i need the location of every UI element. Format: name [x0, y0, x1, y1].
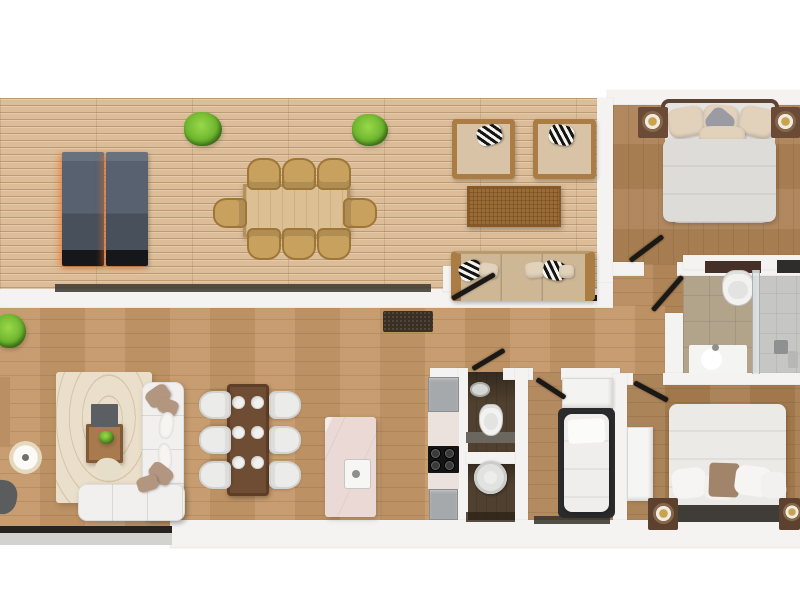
bed2-pillow-1: [671, 466, 708, 499]
bed1-duvet: [663, 139, 776, 222]
window-sill-left: [0, 533, 172, 545]
terrace-chair-2: [282, 158, 316, 190]
vanity-sink: [701, 349, 722, 370]
burner-4: [445, 461, 454, 470]
terrace-chair-3: [317, 158, 351, 190]
lamp-2: [775, 111, 796, 132]
shower-faucet: [788, 351, 798, 368]
wall-junction: [597, 283, 613, 308]
bedroom1-bottom-wall-a: [613, 262, 644, 276]
plate-5: [232, 456, 245, 469]
terrace-chair-1: [247, 158, 281, 190]
bed2-pillow-4: [760, 471, 787, 499]
single-bedroom2-wall: [613, 374, 627, 526]
bathroom-bottom-wall-b: [663, 373, 800, 385]
shower-control: [774, 340, 788, 354]
side-table-handle: [22, 454, 29, 461]
terrace-chair-8: [343, 198, 377, 228]
kitchen-counter-a: [428, 412, 459, 446]
terrace-plant-2: [352, 114, 388, 146]
kitchen-back-wall: [458, 368, 468, 526]
kitchen-cabinet: [429, 489, 458, 520]
dining-chair-2: [199, 426, 231, 454]
sofa-base: [78, 484, 185, 521]
fridge: [428, 377, 459, 412]
plate-4: [251, 426, 264, 439]
floor-plan-3d-top-view: [0, 0, 800, 600]
wardrobe: [562, 378, 613, 408]
dining-chair-1: [199, 391, 231, 419]
plate-1: [232, 396, 245, 409]
desk-dresser: [627, 427, 653, 501]
terrace-chair-7: [213, 198, 247, 228]
plate-3: [232, 426, 245, 439]
dining-chair-3: [199, 461, 231, 489]
burner-1: [431, 449, 440, 458]
terrace-chair-5: [282, 228, 316, 260]
sun-lounger-1: [62, 152, 104, 266]
coffee-table-plant: [99, 431, 114, 444]
lamp-1: [642, 111, 663, 132]
wc-toilet: [479, 404, 503, 436]
dining-chair-6: [269, 461, 301, 489]
bottom-wall: [170, 520, 800, 548]
terrace-glass-wall: [55, 284, 431, 292]
kitchen-counter-b: [428, 473, 459, 489]
terrace-plant-1: [184, 112, 222, 146]
shower-glass: [752, 270, 760, 374]
bedroom1-left-wall: [597, 98, 613, 290]
burner-2: [445, 449, 454, 458]
wc-right-wall: [515, 368, 528, 526]
terrace-coffee-table: [467, 186, 561, 227]
doormat: [383, 311, 433, 332]
burner-3: [431, 461, 440, 470]
lamp-3: [653, 503, 674, 524]
wc-sink: [470, 382, 490, 397]
toilet-main-bath: [722, 270, 754, 306]
washing-machine: [474, 461, 507, 494]
sun-lounger-2: [106, 152, 148, 266]
coffee-table-tray: [91, 404, 118, 427]
bathroom-hall-wall: [665, 313, 683, 374]
sofa-pillow-cream-3: [559, 265, 574, 278]
single-bed-pillow: [567, 418, 605, 444]
small-rooms-shadow: [466, 512, 515, 522]
terrace-chair-6: [317, 228, 351, 260]
terrace-chair-4: [247, 228, 281, 260]
island-faucet: [352, 470, 360, 478]
bed2-footboard: [666, 505, 788, 522]
bathroom-niche: [777, 260, 800, 273]
vanity-faucet: [712, 344, 719, 351]
plate-6: [251, 456, 264, 469]
plate-2: [251, 396, 264, 409]
dining-chair-4: [269, 391, 301, 419]
dining-chair-5: [269, 426, 301, 454]
sideboard: [0, 377, 10, 447]
lamp-4: [783, 503, 800, 521]
